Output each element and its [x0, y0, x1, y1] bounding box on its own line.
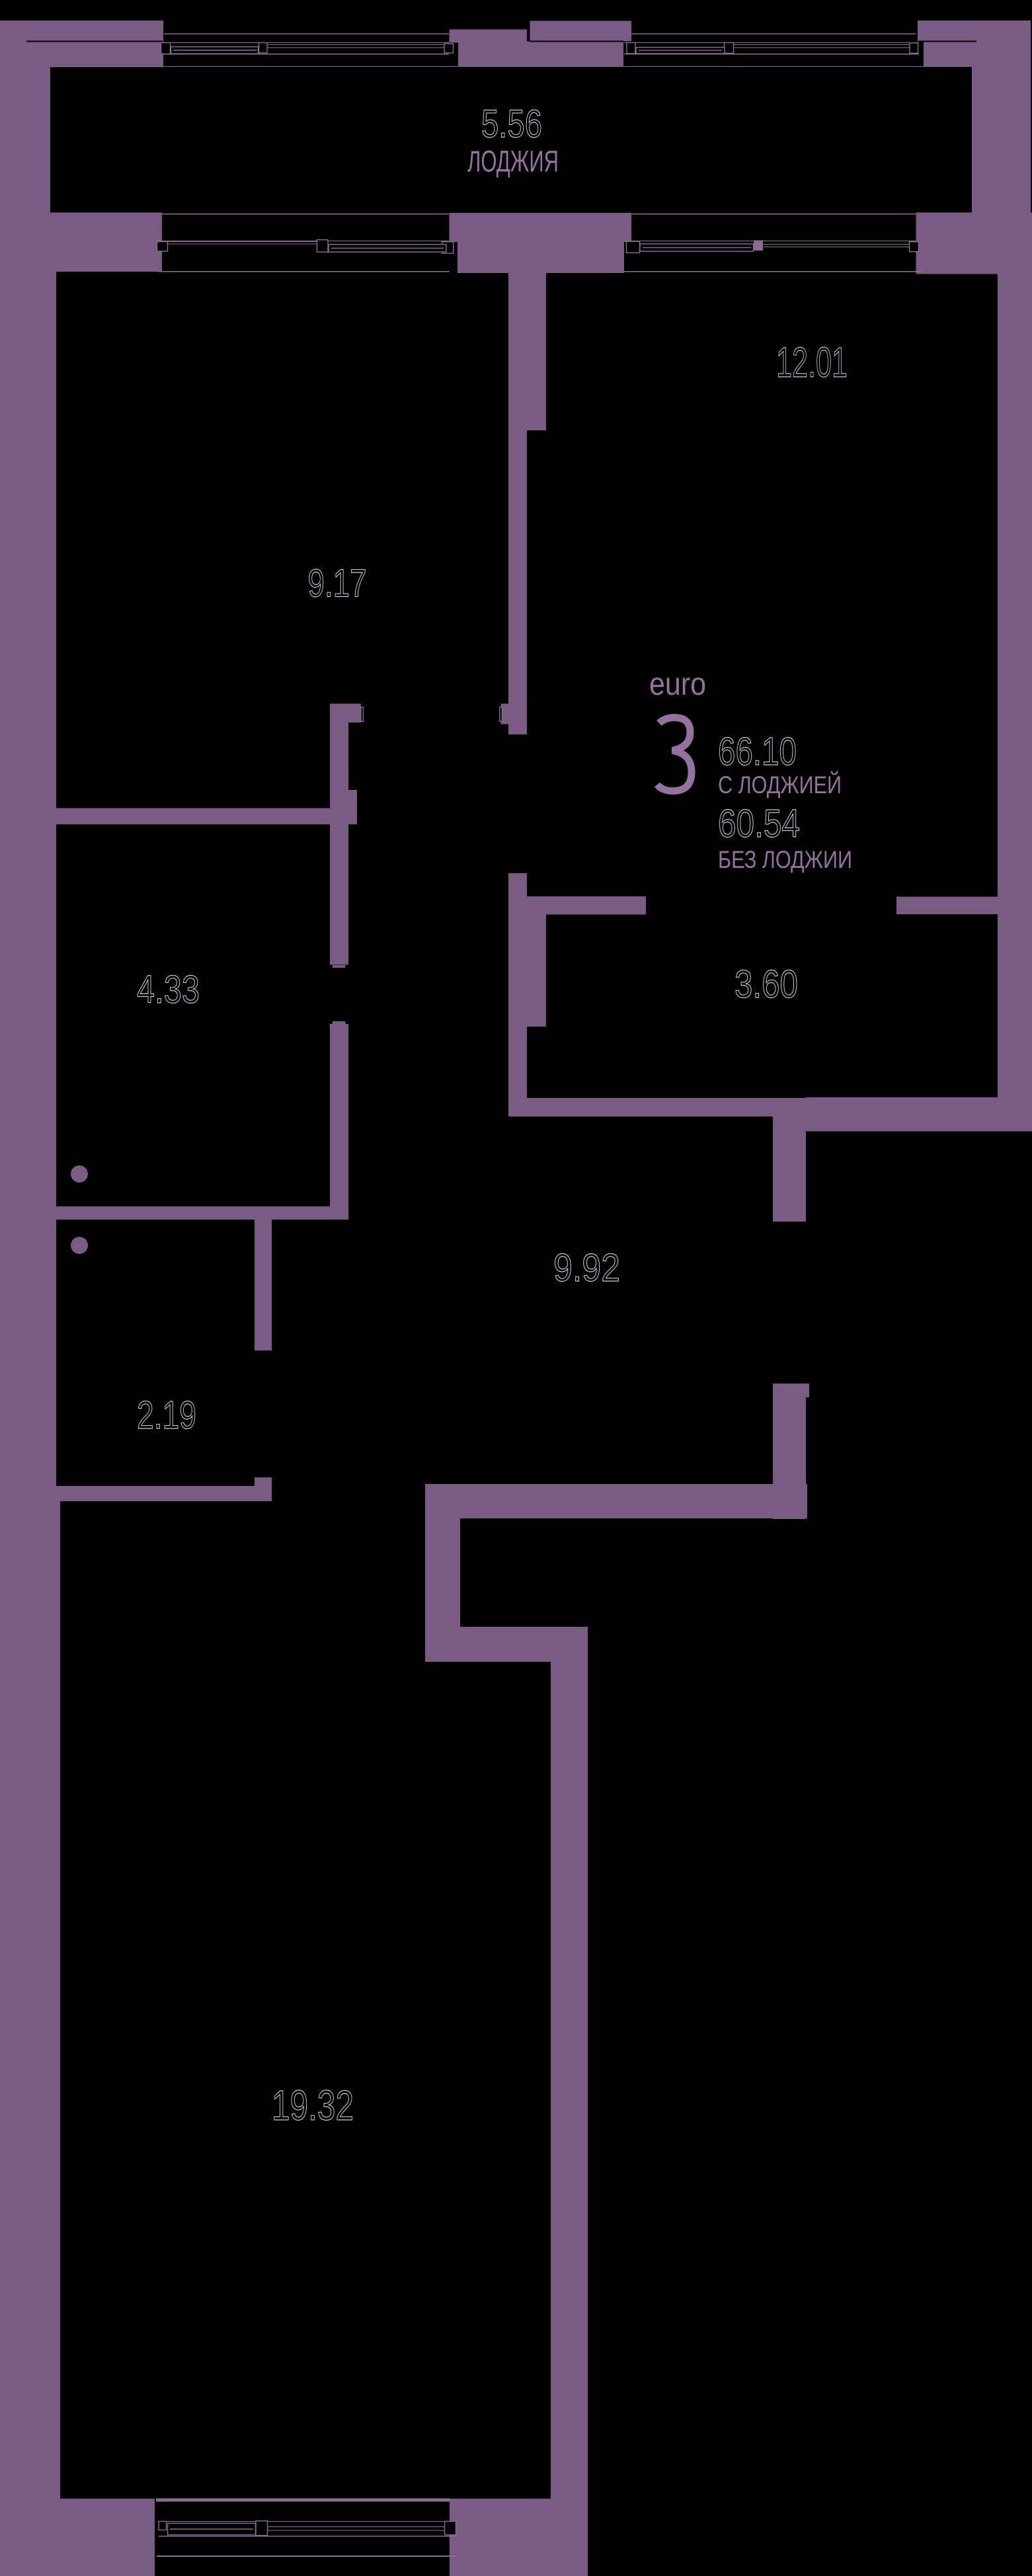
svg-text:60.54: 60.54 — [718, 802, 800, 845]
svg-text:БЕЗ ЛОДЖИИ: БЕЗ ЛОДЖИИ — [718, 846, 852, 873]
svg-text:12.01: 12.01 — [776, 338, 848, 386]
svg-text:3.60: 3.60 — [734, 962, 798, 1006]
svg-text:5.56: 5.56 — [481, 102, 542, 146]
svg-text:ЛОДЖИЯ: ЛОДЖИЯ — [467, 145, 559, 178]
svg-text:9.92: 9.92 — [553, 1246, 620, 1290]
svg-text:С ЛОДЖИЕЙ: С ЛОДЖИЕЙ — [718, 771, 842, 799]
svg-text:2.19: 2.19 — [137, 1393, 196, 1437]
svg-text:euro: euro — [649, 667, 706, 702]
svg-text:66.10: 66.10 — [718, 730, 797, 773]
svg-text:19.32: 19.32 — [272, 2082, 354, 2129]
svg-text:4.33: 4.33 — [137, 968, 200, 1011]
svg-text:9.17: 9.17 — [308, 562, 367, 605]
